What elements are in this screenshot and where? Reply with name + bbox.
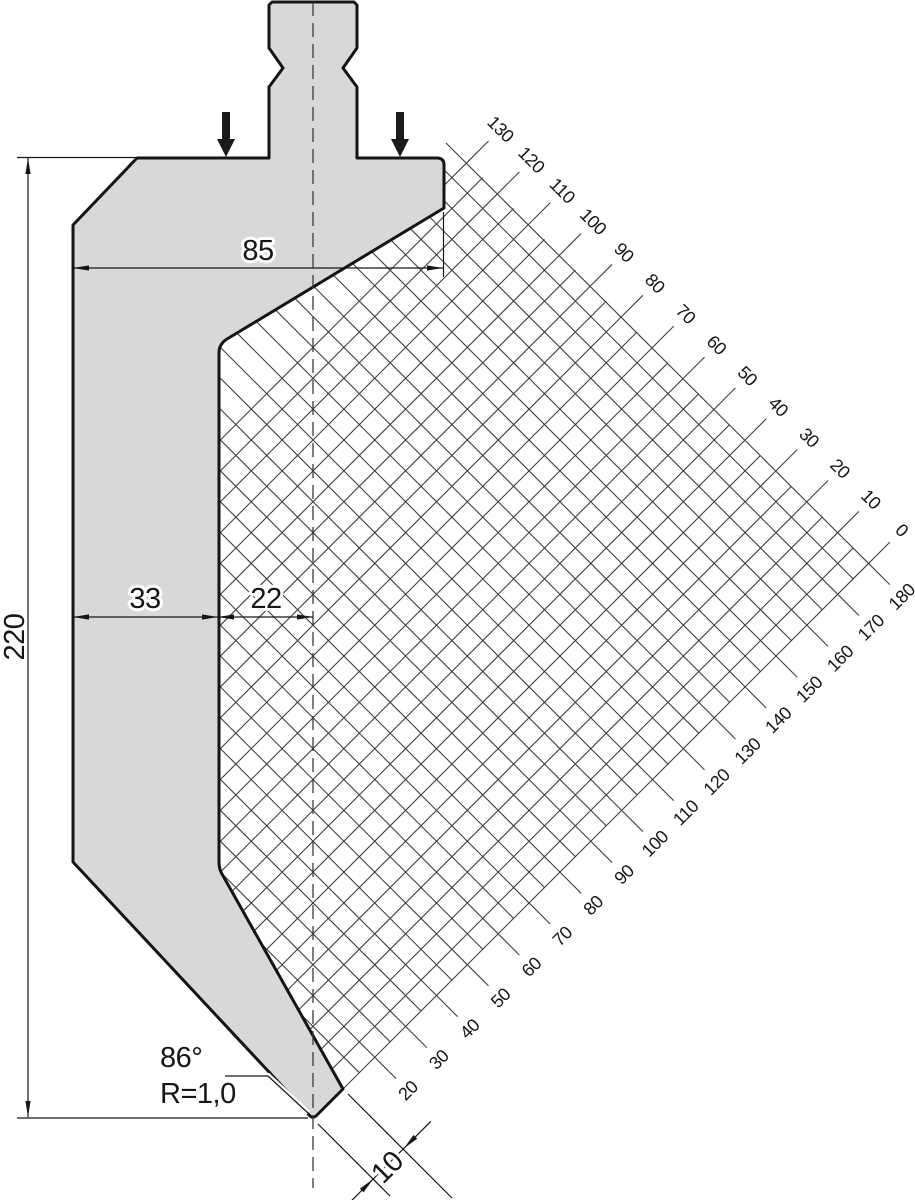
grid-line-b [219, 301, 606, 688]
grid-line-a [219, 377, 637, 795]
scale-tick-upper [838, 511, 859, 532]
grid-line-b [219, 347, 653, 781]
press-force-arrow-left [217, 112, 235, 157]
scale-tick-lower [560, 872, 581, 893]
tip-radius-label: R=1,0 [160, 1078, 236, 1110]
grid-line-a [238, 334, 668, 764]
scale-label-upper: 90 [610, 239, 638, 267]
arrowhead-right-icon [427, 265, 443, 270]
scale-label-lower: 50 [487, 984, 515, 1012]
extension-line-edge [348, 1094, 452, 1198]
scale-tick-lower [406, 1026, 427, 1047]
grid-line-a [219, 346, 653, 780]
scale-label-upper: 20 [826, 455, 854, 483]
scale-tick-lower [591, 841, 612, 862]
scale-label-lower: 110 [669, 796, 703, 830]
scale-label-upper: 70 [672, 300, 700, 328]
grid-line-a [219, 469, 591, 841]
grid-line-b [221, 394, 699, 872]
scale-tick-lower [838, 594, 859, 615]
technical-drawing-punch: 2030405060708090100110120130140150160170… [0, 0, 915, 1200]
grid-line-b [219, 270, 575, 626]
grid-line-a [219, 655, 498, 934]
arrowhead-down-icon [25, 1101, 30, 1117]
grid-line-b [232, 409, 714, 891]
grid-line-a [276, 310, 699, 733]
scale-label-lower: 70 [549, 922, 577, 950]
scale-tick-lower [436, 996, 457, 1017]
grid-line-a [295, 299, 714, 718]
scale-label-upper: 40 [764, 393, 792, 421]
scale-tick-upper [622, 295, 643, 316]
dim-body-width-label: 33 [129, 583, 160, 615]
dim-tip-drop-label: 10 [365, 1145, 410, 1190]
grid-line-a [219, 500, 575, 856]
grid-line-b [219, 317, 622, 720]
scale-tick-upper [591, 264, 612, 285]
grid-line-b [265, 455, 760, 950]
scale-tick-lower [745, 687, 766, 708]
grid-line-a [391, 240, 791, 640]
scale-tick-lower [467, 965, 488, 986]
dimension-tip-drop: 10 [318, 1094, 452, 1200]
grid-line-b [321, 533, 838, 1050]
scale-tick-upper [745, 419, 766, 440]
scale-tick-lower [714, 718, 735, 739]
scale-label-upper: 0 [891, 520, 912, 541]
scale-tick-lower [498, 934, 519, 955]
scale-label-lower: 60 [518, 953, 546, 981]
arrowhead-upper-icon [404, 1135, 417, 1148]
arrowhead-lower-icon [360, 1179, 373, 1192]
scale-label-upper: 10 [857, 486, 885, 514]
grid-line-b [219, 363, 668, 812]
scale-label-lower: 20 [394, 1076, 422, 1104]
grid-line-b [276, 471, 776, 971]
scale-tick-upper [529, 203, 550, 224]
grid-line-a [314, 287, 729, 702]
scale-label-lower: 80 [579, 891, 607, 919]
scale-tick-lower [776, 656, 797, 677]
press-force-arrow-right [391, 112, 409, 157]
scale-tick-upper [869, 542, 890, 563]
dim-total-height-label: 220 [0, 614, 31, 661]
scale-tick-upper [653, 326, 674, 347]
working-range-scale-labels: 2030405060708090100110120130140150160170… [394, 112, 915, 1104]
tip-angle-label: 86° [160, 1042, 202, 1074]
punch-body-outline [73, 2, 444, 1117]
drawing-canvas: 2030405060708090100110120130140150160170… [0, 0, 915, 1200]
scale-tick-upper [560, 234, 581, 255]
dimension-tip-offset: 22 [218, 583, 313, 620]
scale-label-upper: 50 [734, 362, 762, 390]
scale-tick-upper [498, 172, 519, 193]
grid-line-b [254, 440, 745, 931]
grid-line-a [372, 252, 776, 656]
scale-label-lower: 90 [610, 860, 638, 888]
dim-tip-offset-label: 22 [250, 583, 281, 615]
scale-tick-upper [467, 141, 488, 162]
grid-line-b [219, 378, 683, 842]
scale-tick-upper [714, 388, 735, 409]
dim-top-width-label: 85 [242, 235, 273, 267]
arrowhead-right-icon [297, 614, 313, 619]
grid-line-a [446, 143, 869, 563]
grid-line-b [288, 486, 792, 990]
grid-line-a [429, 217, 822, 610]
scale-tick-lower [653, 779, 674, 800]
scale-tick-lower [375, 1057, 396, 1078]
scale-tick-lower [869, 563, 890, 584]
scale-tick-lower [529, 903, 550, 924]
scale-label-upper: 80 [641, 270, 669, 298]
grid-line-b [310, 517, 823, 1030]
scale-tick-upper [776, 450, 797, 471]
scale-label-lower: 30 [425, 1046, 453, 1074]
arrowhead-up-icon [25, 158, 30, 174]
scale-label-upper: 110 [546, 174, 580, 208]
scale-tick-upper [683, 357, 704, 378]
grid-line-a [353, 264, 761, 672]
grid-line-a [219, 716, 467, 964]
scale-label-upper: 60 [703, 331, 731, 359]
scale-tick-lower [683, 749, 704, 770]
grid-line-a [219, 439, 606, 826]
scale-tick-lower [622, 810, 643, 831]
scale-label-upper: 30 [795, 424, 823, 452]
scale-label-lower: 40 [456, 1015, 484, 1043]
grid-line-a [219, 624, 514, 919]
scale-tick-upper [807, 480, 828, 501]
grid-line-b [219, 332, 637, 750]
scale-tick-lower [807, 625, 828, 646]
